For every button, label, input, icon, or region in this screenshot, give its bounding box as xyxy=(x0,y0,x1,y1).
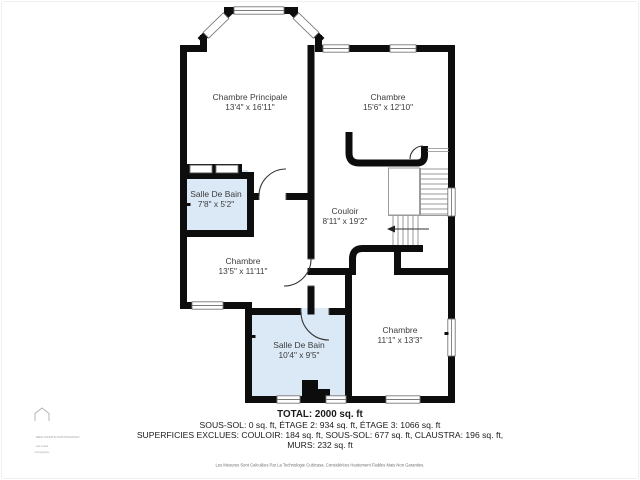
house-logo-icon xyxy=(33,407,51,422)
room-dimensions: 8'11" x 19'2" xyxy=(297,216,393,227)
room-name: Chambre xyxy=(185,256,301,266)
photographer-watermark: REAL ESTATE PHOTOGRAPHY real estate phot… xyxy=(14,407,70,457)
room-name: Salle De Bain xyxy=(251,340,347,350)
walls-area: MURS: 232 sq. ft xyxy=(0,441,640,451)
room-label-couloir: Couloir 8'11" x 19'2" xyxy=(297,206,393,227)
room-name: Chambre xyxy=(330,92,446,102)
area-summary: TOTAL: 2000 sq. ft SOUS-SOL: 0 sq. ft, É… xyxy=(0,409,640,450)
closet-sliding-doors xyxy=(186,164,242,174)
watermark-subtitle2: photography xyxy=(29,451,54,454)
room-label-salle-de-bain-large: Salle De Bain 10'4" x 9'5" xyxy=(251,340,347,361)
room-dimensions: 13'4" x 16'11" xyxy=(175,102,325,113)
room-dimensions: 7'8" x 5'2" xyxy=(179,199,253,210)
disclaimer-row: Les Mesures Sont Calculées Par La Techno… xyxy=(0,457,640,475)
room-dimensions: 13'5" x 11'11" xyxy=(185,266,301,277)
room-label-chambre-bottom-right: Chambre 11'1" x 13'3" xyxy=(352,325,448,346)
watermark-subtitle: real estate xyxy=(29,445,54,448)
watermark-title: REAL ESTATE PHOTOGRAPHY xyxy=(36,436,80,439)
room-label-salle-de-bain-small: Salle De Bain 7'8" x 5'2" xyxy=(179,189,253,210)
room-dimensions: 11'1" x 13'3" xyxy=(352,335,448,346)
room-dimensions: 10'4" x 9'5" xyxy=(251,350,347,361)
floorplan-drawing xyxy=(0,0,640,480)
measurement-disclaimer: Les Mesures Sont Calculées Par La Techno… xyxy=(216,463,425,468)
room-name: Chambre xyxy=(352,325,448,335)
staircase xyxy=(388,168,448,245)
room-label-chambre-middle-left: Chambre 13'5" x 11'11" xyxy=(185,256,301,277)
room-name: Couloir xyxy=(297,206,393,216)
room-label-chambre-top-right: Chambre 15'6" x 12'10" xyxy=(330,92,446,113)
room-name: Salle De Bain xyxy=(179,189,253,199)
room-dimensions: 15'6" x 12'10" xyxy=(330,102,446,113)
room-name: Chambre Principale xyxy=(175,92,325,102)
room-label-chambre-principale: Chambre Principale 13'4" x 16'11" xyxy=(175,92,325,113)
